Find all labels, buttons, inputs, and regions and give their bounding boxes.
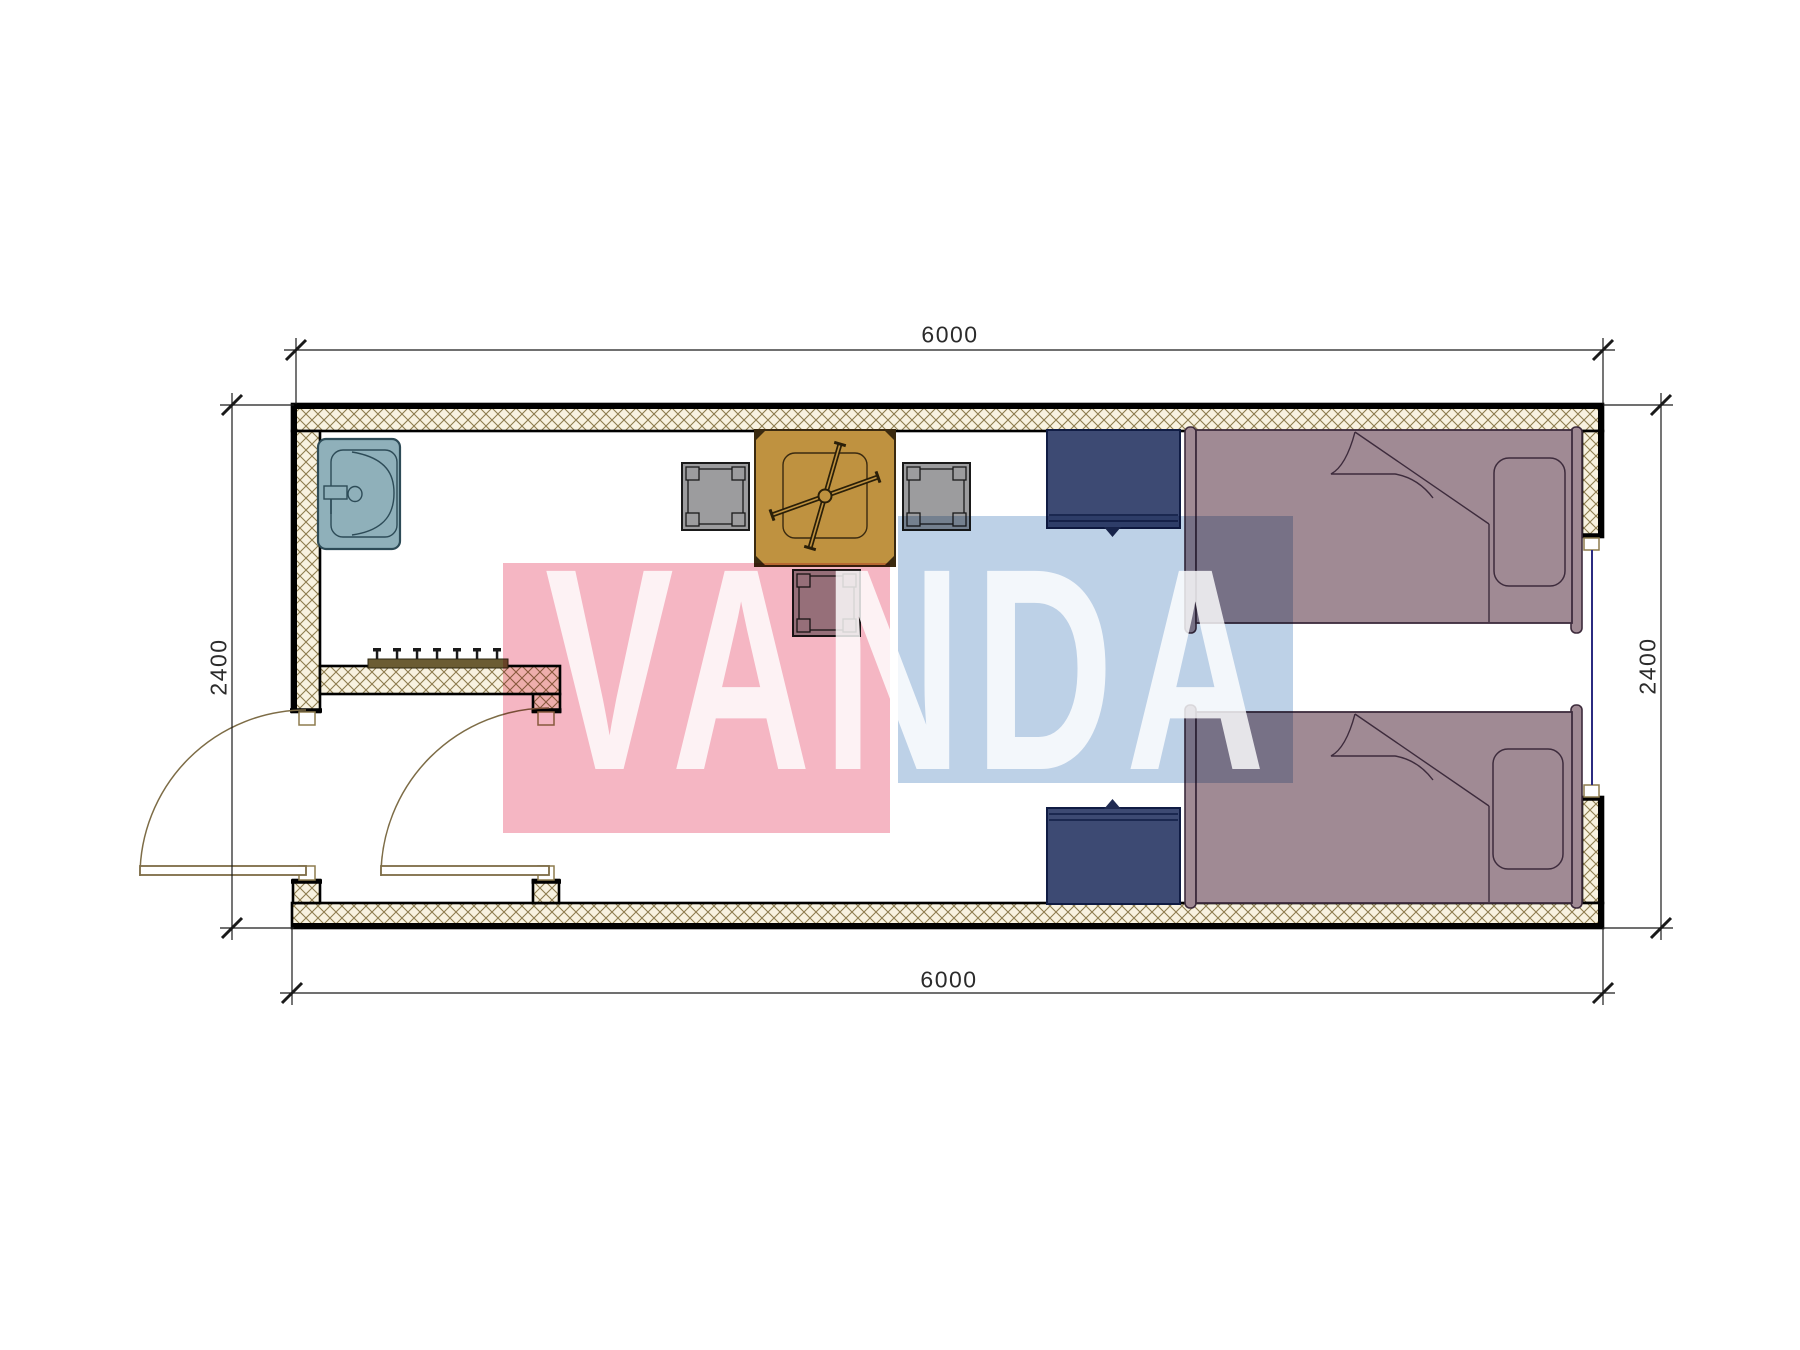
door-leaf	[140, 866, 306, 875]
dim-label-bottom: 6000	[920, 967, 977, 994]
watermark-text: VANDA	[545, 526, 1277, 814]
window-jamb-top	[1584, 538, 1599, 550]
pillow	[1494, 458, 1565, 586]
coat-rack	[368, 648, 508, 668]
sink	[318, 439, 400, 549]
coat-hooks	[373, 648, 501, 659]
door-leaf	[381, 866, 549, 875]
window-jamb-bottom	[1584, 785, 1599, 797]
entry-door-exterior	[140, 710, 306, 876]
dim-label-right: 2400	[1635, 637, 1662, 694]
dim-label-left: 2400	[206, 638, 233, 695]
dim-label-top: 6000	[921, 322, 978, 349]
floor-plan-canvas: 6000 6000 2400 2400 VANDA	[0, 0, 1800, 1350]
pillow	[1493, 749, 1563, 869]
faucet	[324, 486, 347, 499]
